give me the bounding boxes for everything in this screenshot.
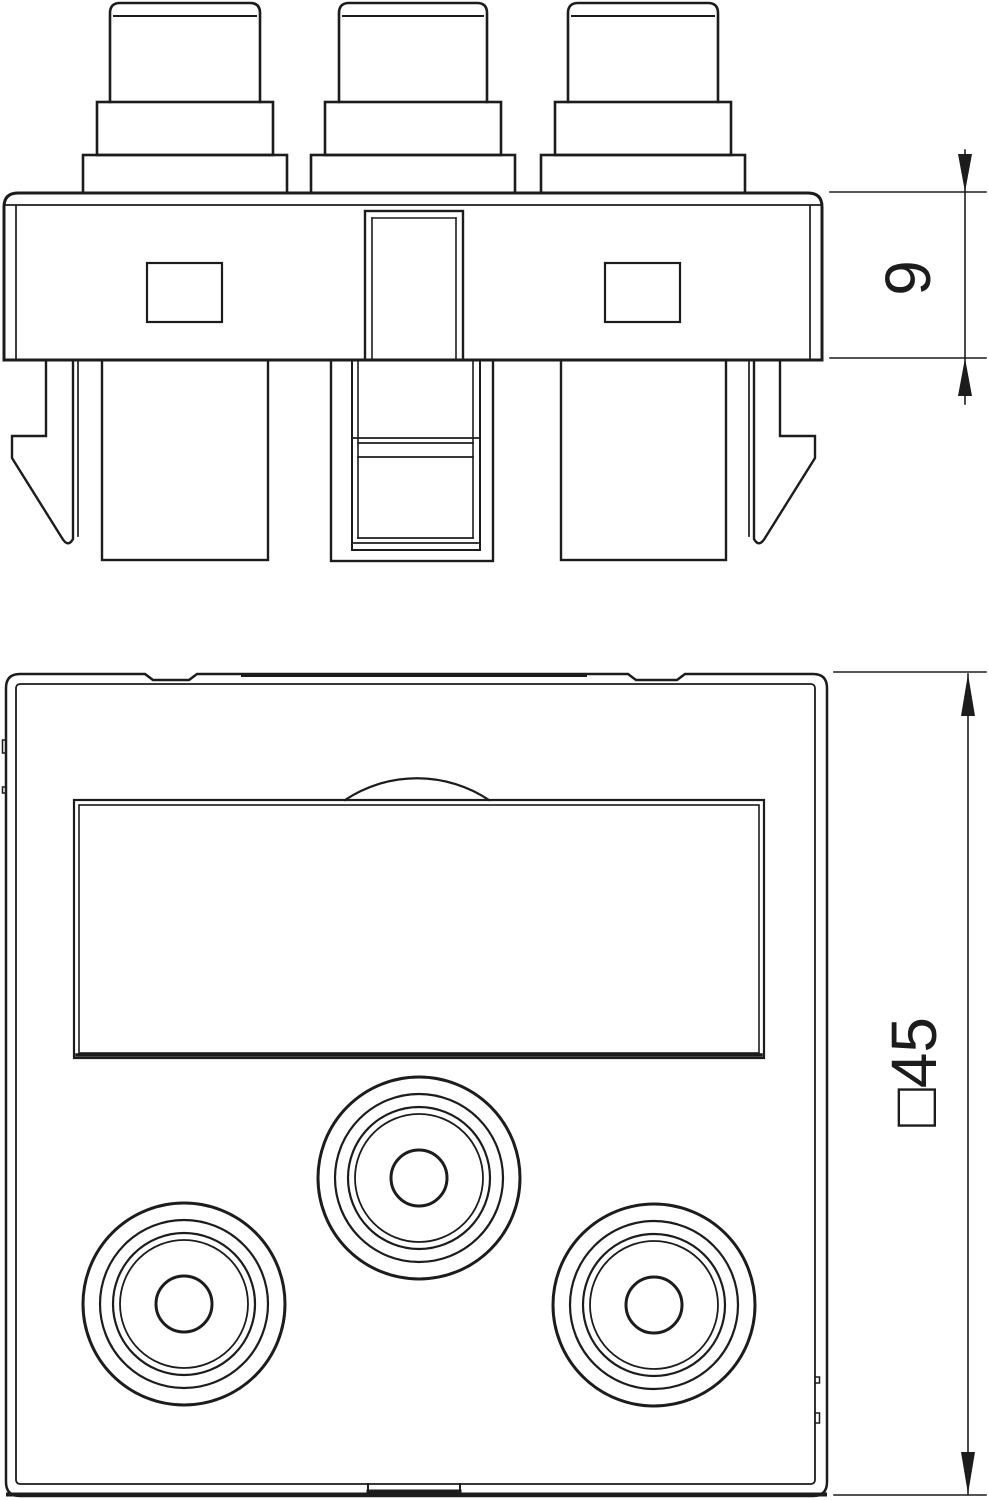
snap-hook-left	[12, 360, 73, 543]
dimension-45-label: □45	[878, 1017, 950, 1127]
snap-hook-right	[754, 360, 815, 543]
pin-hole	[626, 1277, 682, 1333]
drawing-svg: 9	[0, 0, 988, 1500]
pin-hole	[156, 1276, 212, 1332]
side-view: 9	[4, 3, 986, 561]
arrowhead-up-icon	[958, 358, 972, 396]
plate-window-left	[147, 263, 222, 322]
plate-center-slot	[365, 211, 463, 360]
connector-left	[83, 3, 287, 193]
arrowhead-up-icon	[961, 674, 975, 716]
pin-hole	[391, 1150, 447, 1206]
plate-window-right	[605, 263, 680, 322]
thumb-notch-arc	[345, 778, 489, 800]
foot-block-center	[331, 360, 493, 561]
arrowhead-down-icon	[958, 154, 972, 192]
cinch-socket-right	[553, 1204, 755, 1406]
label-field	[74, 778, 764, 1058]
connector-right	[541, 3, 745, 193]
technical-drawing: 9	[0, 0, 988, 1500]
mounting-plate	[4, 193, 822, 360]
dimension-9: 9	[830, 150, 986, 404]
dimension-9-label: 9	[872, 260, 944, 296]
connector-middle	[311, 3, 515, 193]
snap-feet	[12, 360, 815, 561]
arrowhead-down-icon	[961, 1452, 975, 1494]
foot-block-right	[561, 360, 726, 560]
foot-block-left	[102, 360, 268, 560]
dimension-45: □45	[834, 672, 986, 1495]
front-view: □45	[3, 672, 987, 1496]
cinch-socket-center	[318, 1077, 520, 1279]
cinch-socket-left	[83, 1203, 285, 1405]
